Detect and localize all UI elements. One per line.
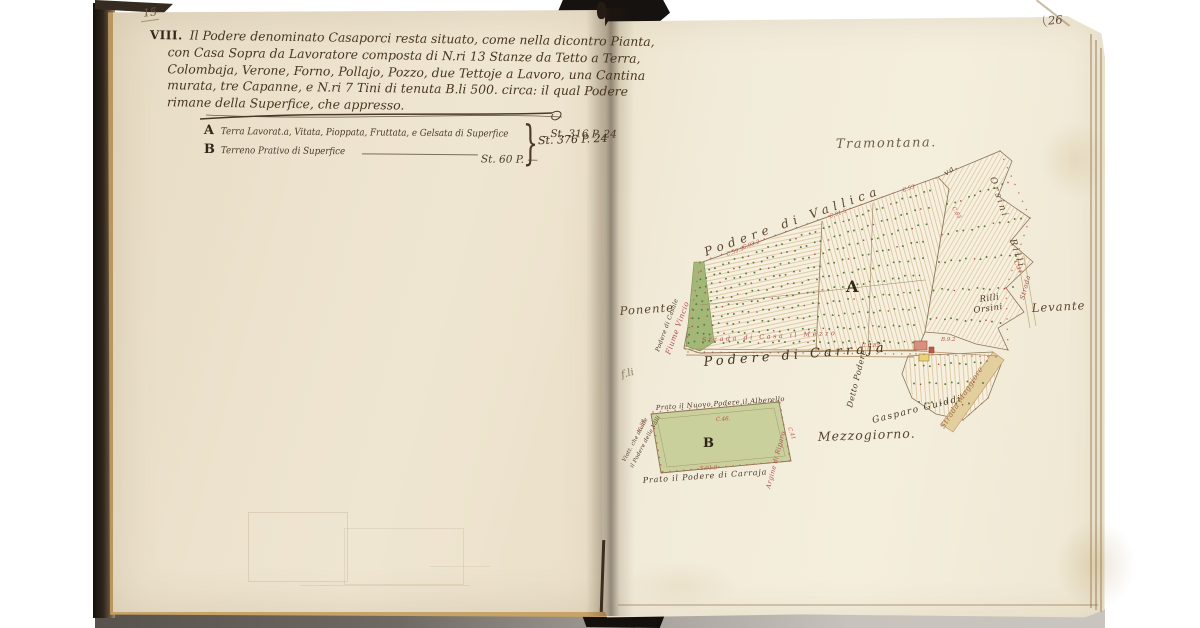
- binding-thread-top: [597, 2, 606, 19]
- bleed-through-line: [300, 585, 470, 586]
- sum-brace: }: [523, 116, 538, 171]
- entry-text: Terra Lavorat.a, Vitata, Pioppata, Frutt…: [221, 126, 509, 140]
- bleed-through-line: [430, 566, 490, 567]
- strada-small-label: Strada: [1018, 274, 1032, 300]
- book-scan: 15 VIII.Il Podere denominato Casaporci r…: [0, 0, 1200, 628]
- cadastral-map: C.93.2C.91.5C.59.3C.53C.83C.44B.9.2C.6.8…: [600, 128, 1110, 503]
- farmhouse-building: [914, 341, 927, 350]
- mezzogiorno-label: Mezzogiorno.: [817, 426, 916, 444]
- entry-row-a: A Terra Lavorat.a, Vitata, Pioppata, Fru…: [204, 123, 538, 141]
- measurement-mark: C.41: [786, 427, 796, 441]
- description-paragraph: VIII.Il Podere denominato Casaporci rest…: [149, 27, 592, 117]
- left-page-number: 15: [142, 5, 157, 19]
- entry-text: Terreno Prativo di Superfice: [221, 145, 345, 157]
- measurement-mark: B.9.2: [940, 337, 956, 343]
- measurement-mark: C.46.: [716, 416, 731, 423]
- section-numeral: VIII.: [150, 28, 183, 42]
- entry-key: A: [204, 123, 221, 138]
- total-value: St. 376 P. 24: [538, 132, 608, 147]
- plot-a-letter-label: A: [845, 277, 859, 296]
- entry-row-b: B Terreno Prativo di Superfice St. 60 P.…: [204, 142, 538, 160]
- paper-stain: [620, 560, 740, 610]
- farm-outbuilding: [919, 354, 929, 361]
- leader-line: [362, 144, 478, 155]
- farm-shed: [929, 347, 934, 353]
- scribble-label: f.li: [619, 367, 635, 381]
- bleed-through-ghost: [344, 528, 464, 585]
- paper-stain: [1055, 520, 1135, 610]
- plot-b-letter-label: B: [703, 436, 714, 451]
- bleed-through-ghost: [248, 512, 348, 582]
- levante-label: Levante: [1030, 298, 1085, 315]
- ponente-label: Ponente: [618, 300, 674, 318]
- tramontana-label: Tramontana.: [836, 135, 937, 152]
- entry-key: B: [204, 142, 221, 157]
